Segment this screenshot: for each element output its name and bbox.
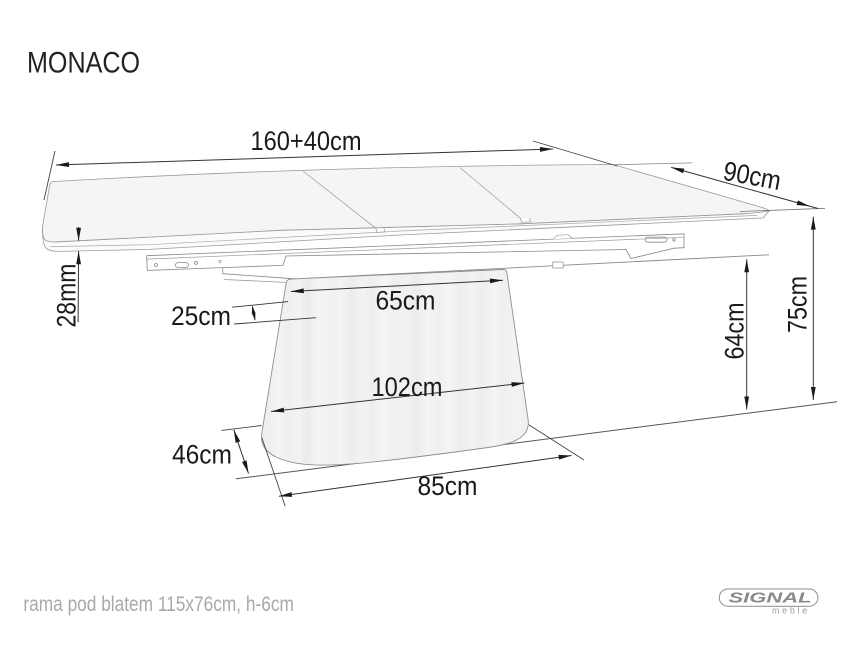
svg-text:102cm: 102cm	[372, 372, 443, 402]
svg-text:65cm: 65cm	[376, 286, 436, 316]
svg-text:28mm: 28mm	[52, 264, 82, 328]
svg-text:85cm: 85cm	[418, 471, 478, 501]
svg-text:MONACO: MONACO	[27, 47, 140, 80]
svg-text:25cm: 25cm	[171, 301, 231, 331]
svg-text:90cm: 90cm	[721, 156, 783, 196]
svg-text:160+40cm: 160+40cm	[251, 126, 362, 156]
svg-text:46cm: 46cm	[172, 440, 232, 470]
svg-text:64cm: 64cm	[720, 303, 750, 360]
svg-text:75cm: 75cm	[783, 276, 813, 333]
svg-text:rama pod blatem 115x76cm, h-6c: rama pod blatem 115x76cm, h-6cm	[23, 593, 294, 616]
svg-text:meble: meble	[772, 605, 810, 616]
svg-text:SIGNAL: SIGNAL	[729, 591, 812, 607]
